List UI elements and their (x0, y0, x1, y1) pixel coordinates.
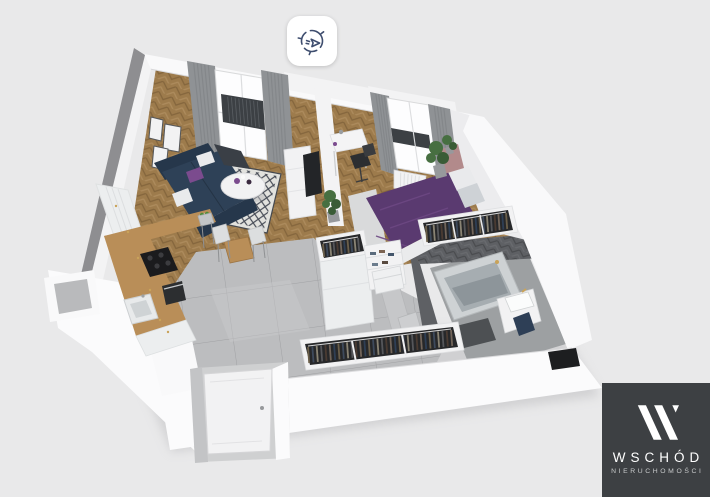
entry-wardrobe-clothes (317, 346, 318, 362)
plant-hallway (322, 200, 330, 208)
hall-closet-clothes (323, 244, 324, 257)
entry-wardrobe-clothes (325, 345, 326, 361)
rotate-compass-icon (297, 26, 327, 56)
hall-closet-clothes (334, 242, 335, 255)
front-door-handle (260, 406, 264, 410)
hall-closet-clothes (344, 240, 345, 253)
bedroom-closet-clothes (498, 214, 499, 230)
cabinet-gold-knobs (167, 331, 169, 333)
plant-nightstand (449, 142, 457, 150)
cabinet-gold-knobs (127, 231, 129, 233)
cooktop-burners (154, 263, 159, 268)
bedroom-closet-clothes (430, 225, 431, 241)
entry-wardrobe-clothes (412, 335, 413, 351)
bathtub-faucet-gold (495, 260, 499, 264)
bedroom-closet-clothes (502, 214, 503, 230)
bedroom-closet-clothes (464, 220, 465, 236)
bedroom-closet-clothes (506, 213, 507, 229)
entry-wardrobe-clothes (416, 334, 417, 350)
entry-wardrobe-clothes (343, 343, 344, 359)
bedroom-closet-clothes (456, 221, 457, 237)
entry-wardrobe-clothes (447, 331, 448, 347)
plant-hallway (328, 207, 336, 215)
cooktop-burners (158, 252, 163, 257)
bedroom-closet-clothes (460, 220, 461, 236)
hall-closet-clothes (351, 239, 352, 252)
hall-closet-clothes (327, 243, 328, 256)
plant-bedroom-corner (426, 153, 436, 163)
hall-closet-front (320, 254, 374, 330)
hall-closet-clothes (330, 243, 331, 256)
plant-bedroom-corner (437, 152, 449, 164)
entry-wardrobe-clothes (408, 335, 409, 351)
cabinet-gold-knobs (137, 257, 139, 259)
bedroom-closet-clothes (426, 226, 427, 242)
entry-wardrobe-clothes (338, 343, 339, 359)
bedroom-closet-clothes (495, 215, 496, 231)
entry-wardrobe-clothes (334, 344, 335, 360)
entry-wardrobe-clothes (438, 332, 439, 348)
tv-screen (303, 151, 322, 197)
bedroom-closet-clothes (434, 225, 435, 241)
coffee-table-vase-white (241, 175, 245, 179)
folded-clothes (379, 250, 385, 253)
cabinet-gold-knobs (149, 289, 151, 291)
entry-wardrobe-clothes (347, 342, 348, 358)
entry-wardrobe-clothes (382, 338, 383, 354)
bedroom-closet-clothes (445, 223, 446, 239)
brand-logo-mark (633, 405, 679, 440)
bedroom-closet-clothes (487, 216, 488, 232)
brand-logo: WSCHÓD NIERUCHOMOŚCI (602, 383, 710, 497)
entry-wardrobe-clothes (386, 338, 387, 354)
entry-wardrobe-clothes (399, 336, 400, 352)
brand-name: WSCHÓD (608, 450, 705, 466)
hall-closet-clothes (341, 241, 342, 254)
entry-wardrobe-clothes (369, 340, 370, 356)
entry-wardrobe-clothes (390, 337, 391, 353)
entry-wardrobe-clothes (321, 345, 322, 361)
folded-clothes (370, 252, 376, 255)
brand-tagline: NIERUCHOMOŚCI (609, 468, 704, 475)
cabinet-gold-knobs (115, 205, 117, 207)
entry-wardrobe-clothes (312, 346, 313, 362)
entry-wardrobe-clothes (364, 340, 365, 356)
entry-wardrobe-clothes (308, 347, 309, 363)
folded-clothes (388, 253, 394, 256)
bedroom-closet-clothes (472, 219, 473, 235)
entry-wardrobe-clothes (442, 331, 443, 347)
folded-clothes (382, 261, 388, 264)
wall-frame-1 (149, 117, 163, 141)
coffee-table-vase-dark (247, 180, 252, 185)
wall-frame-2 (163, 124, 181, 152)
cooktop-burners (165, 260, 170, 265)
entry-wardrobe-clothes (421, 334, 422, 350)
bedroom-closet-clothes (491, 215, 492, 231)
entry-wardrobe-clothes (373, 339, 374, 355)
entry-wardrobe-clothes (451, 330, 452, 346)
entry-wardrobe-clothes (395, 337, 396, 353)
coffee-table-vase-purple (234, 178, 240, 184)
cooktop-burners (147, 255, 152, 260)
hall-closet-clothes (348, 240, 349, 253)
bedroom-closet-clothes (476, 218, 477, 234)
hall-closet-clothes (358, 238, 359, 251)
entry-wardrobe-clothes (425, 333, 426, 349)
bedroom-closet-clothes (449, 222, 450, 238)
desk-lamp (339, 130, 343, 134)
entry-wardrobe-clothes (429, 333, 430, 349)
rotate-view-button[interactable] (287, 16, 337, 66)
desk-accessory-purple (333, 142, 337, 146)
bedroom-closet-clothes (437, 224, 438, 240)
entry-wardrobe-clothes (377, 339, 378, 355)
entry-wardrobe-clothes (356, 341, 357, 357)
entry-wardrobe-clothes (330, 344, 331, 360)
floorplan-viewer: WSCHÓD NIERUCHOMOŚCI (0, 0, 710, 497)
entry-wardrobe-clothes (434, 332, 435, 348)
bedroom-closet-clothes (468, 219, 469, 235)
kitchen-faucet (141, 294, 144, 297)
folded-clothes (372, 263, 378, 266)
hall-closet-clothes (355, 239, 356, 252)
cabinet-gold-knobs (159, 319, 161, 321)
entry-wardrobe-clothes (360, 341, 361, 357)
utility-shaft-opening (54, 279, 92, 314)
hall-closet-clothes (337, 242, 338, 255)
bedroom-closet-clothes (441, 224, 442, 240)
